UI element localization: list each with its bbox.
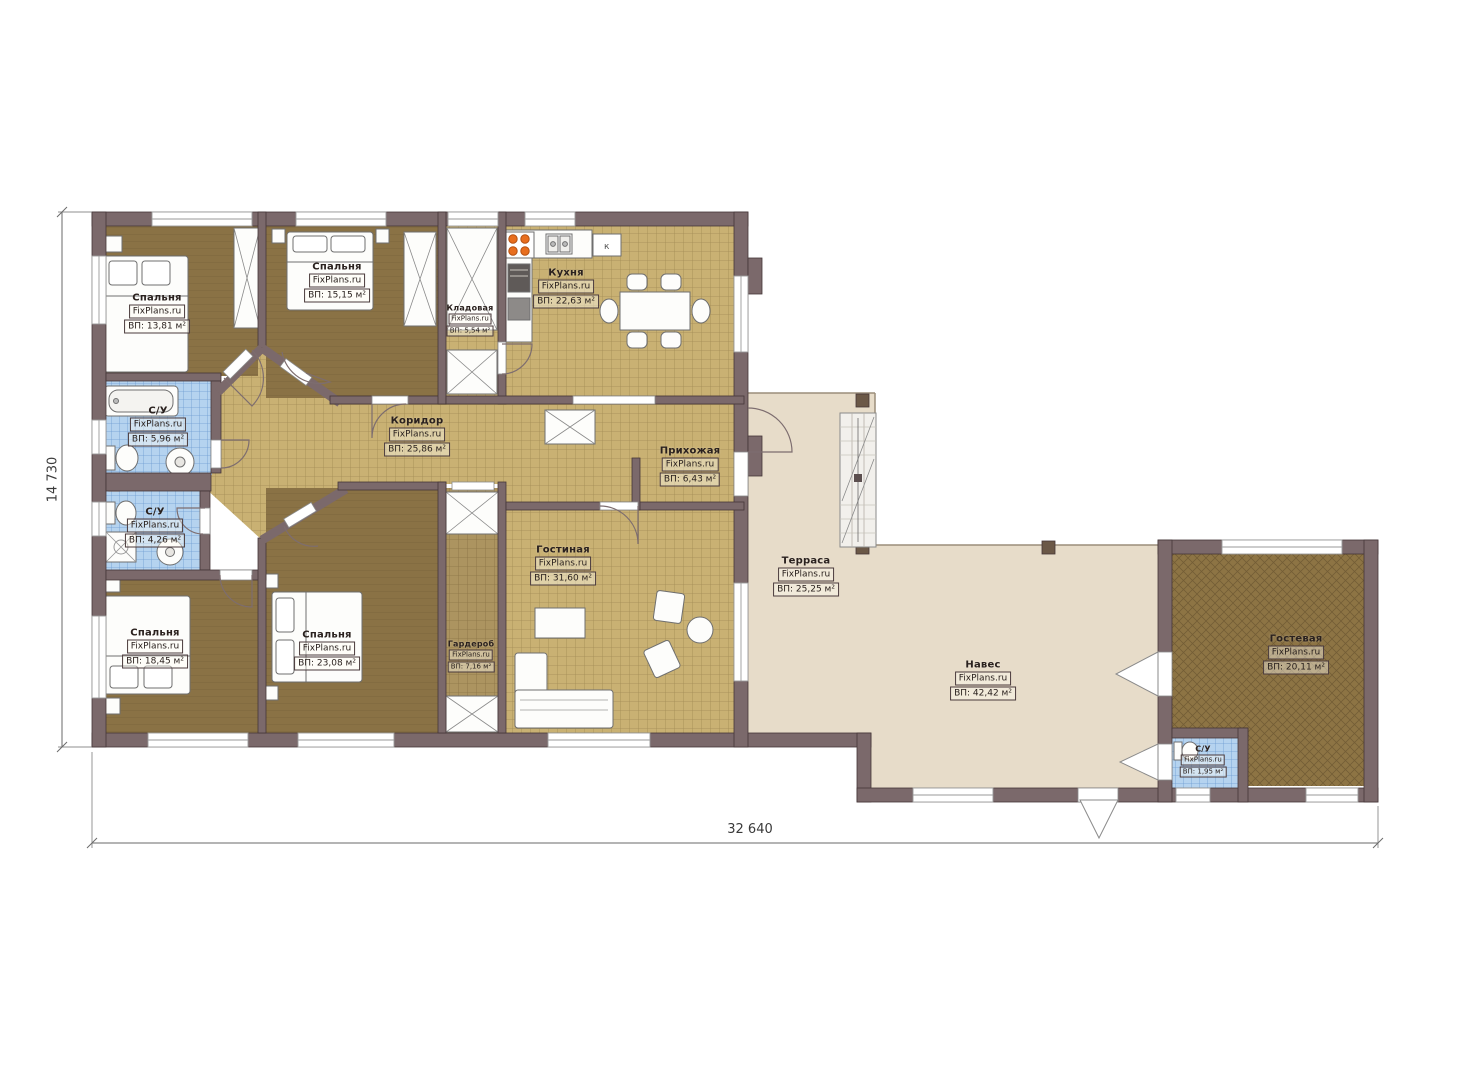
- bed-icon: [104, 576, 190, 714]
- coffee-table-icon: [535, 608, 585, 638]
- bathtub-icon: [104, 386, 178, 416]
- toilet-icon: [106, 445, 138, 471]
- door-gap: [1158, 652, 1172, 696]
- oven-icon: [508, 264, 530, 292]
- window-icon: [448, 212, 498, 226]
- window-icon: [92, 256, 106, 324]
- window-icon: [298, 733, 394, 747]
- window-icon: [92, 616, 106, 698]
- pedestal-sink-icon: [157, 539, 183, 565]
- chair-icon: [661, 274, 681, 290]
- door-gap: [734, 452, 748, 496]
- wardrobe-icon: [234, 228, 260, 328]
- guest-wall-right: [1364, 540, 1378, 802]
- post-icon: [1042, 541, 1055, 554]
- post-icon: [856, 394, 869, 407]
- window-icon: [1176, 788, 1210, 802]
- canopy-floor: [857, 545, 1158, 788]
- window-icon: [296, 212, 386, 226]
- canopy-posts: [856, 394, 1055, 554]
- floor-plan-drawing: к: [0, 0, 1474, 1080]
- sink-icon: [546, 234, 572, 254]
- chair-icon: [661, 332, 681, 348]
- stairs-icon: [840, 413, 876, 547]
- dimension-left: 14 730: [45, 457, 60, 503]
- pedestal-sink-icon: [166, 448, 194, 476]
- bed-icon: [104, 236, 188, 372]
- window-icon: [1306, 788, 1358, 802]
- bed-icon: [272, 229, 389, 310]
- window-icon: [1222, 540, 1342, 554]
- closet-icon: [545, 410, 595, 444]
- dishwasher-icon: [508, 298, 530, 320]
- window-icon: [548, 733, 650, 747]
- window-icon: [525, 212, 575, 226]
- door-swing-icon: [1080, 800, 1118, 838]
- door-gap: [220, 570, 252, 580]
- door-gap: [452, 482, 494, 490]
- pilaster: [748, 436, 762, 476]
- door-gap: [1158, 744, 1172, 780]
- chair-icon: [627, 332, 647, 348]
- toilet-icon: [106, 501, 136, 525]
- door-gap: [200, 508, 210, 534]
- chair-icon: [692, 299, 710, 323]
- bed-icon: [264, 574, 362, 700]
- window-icon: [92, 502, 106, 536]
- chair-icon: [600, 299, 618, 323]
- pilaster: [748, 258, 762, 294]
- nightstand-icon: [104, 698, 120, 714]
- floor-plan-page: к: [0, 0, 1474, 1080]
- washing-machine-icon: [106, 532, 136, 562]
- nightstand-icon: [272, 229, 285, 243]
- wardrobe-icon: [447, 228, 497, 394]
- nightstand-icon: [104, 236, 122, 252]
- side-table-icon: [687, 617, 713, 643]
- window-icon: [734, 276, 748, 352]
- toilet-icon: [1174, 742, 1198, 760]
- window-icon: [152, 212, 252, 226]
- wardrobe-icon: [404, 232, 436, 326]
- window-icon: [92, 420, 106, 454]
- door-gap: [211, 440, 221, 468]
- dimension-bottom: 32 640: [727, 822, 773, 837]
- door-gap: [372, 396, 408, 404]
- window-icon: [148, 733, 248, 747]
- nightstand-icon: [376, 229, 389, 243]
- window-icon: [913, 788, 993, 802]
- fridge-icon: к: [593, 234, 621, 256]
- window-icon: [734, 583, 748, 681]
- door-gap: [498, 342, 506, 374]
- chair-icon: [627, 274, 647, 290]
- armchair-icon: [653, 590, 685, 624]
- door-gap: [573, 396, 655, 404]
- svg-text:к: к: [604, 242, 610, 252]
